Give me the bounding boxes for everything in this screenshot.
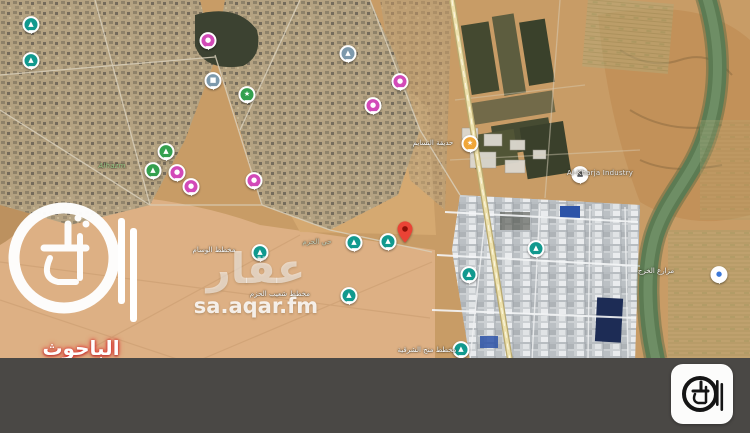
map-label: مزارع الخرج — [638, 267, 674, 275]
screenshot-root: ▲▲●■★▲▲●●●▲●●★■▲▲▲▲▲▲▲● Alhazmحي الحزممخ… — [0, 0, 750, 433]
albahuth-badge-icon — [680, 372, 724, 416]
bottom-bar — [0, 358, 750, 433]
agency-name-label: الباحوث العقارية — [6, 336, 156, 360]
map-label: مخطط شعيب الحزم — [250, 290, 310, 298]
map-label: مخطط منح الشرقية — [398, 346, 457, 354]
map-label: Alhazm — [98, 162, 125, 170]
albahuth-logo-icon — [6, 196, 156, 328]
map-label: حي الحزم — [302, 238, 331, 246]
property-pin[interactable] — [398, 221, 413, 243]
map-label: مخطط الوسام — [193, 246, 236, 254]
property-pin-icon — [398, 221, 413, 243]
map-label: حديقة النسايم — [413, 139, 454, 147]
albahuth-logo: الباحوث العقارية — [6, 196, 166, 360]
satellite-map[interactable]: ▲▲●■★▲▲●●●▲●●★■▲▲▲▲▲▲▲● Alhazmحي الحزممخ… — [0, 0, 750, 360]
albahuth-badge — [671, 364, 733, 424]
map-label: Al-Kharja Industry — [567, 169, 633, 177]
